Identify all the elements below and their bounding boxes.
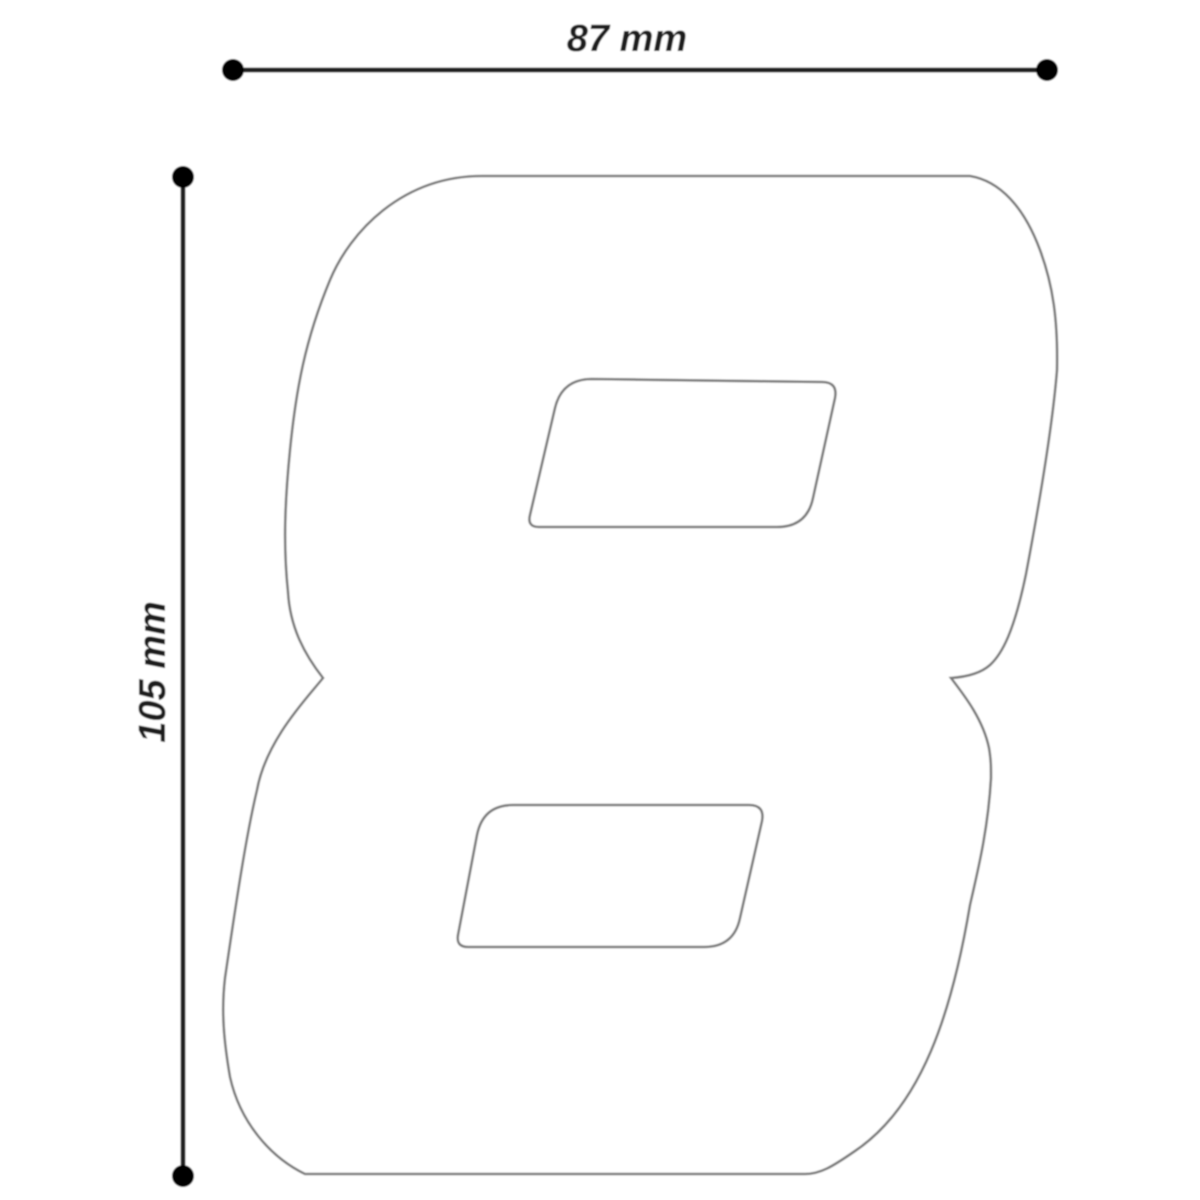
svg-text:105 mm: 105 mm [132, 601, 174, 743]
svg-text:87 mm: 87 mm [567, 18, 687, 60]
